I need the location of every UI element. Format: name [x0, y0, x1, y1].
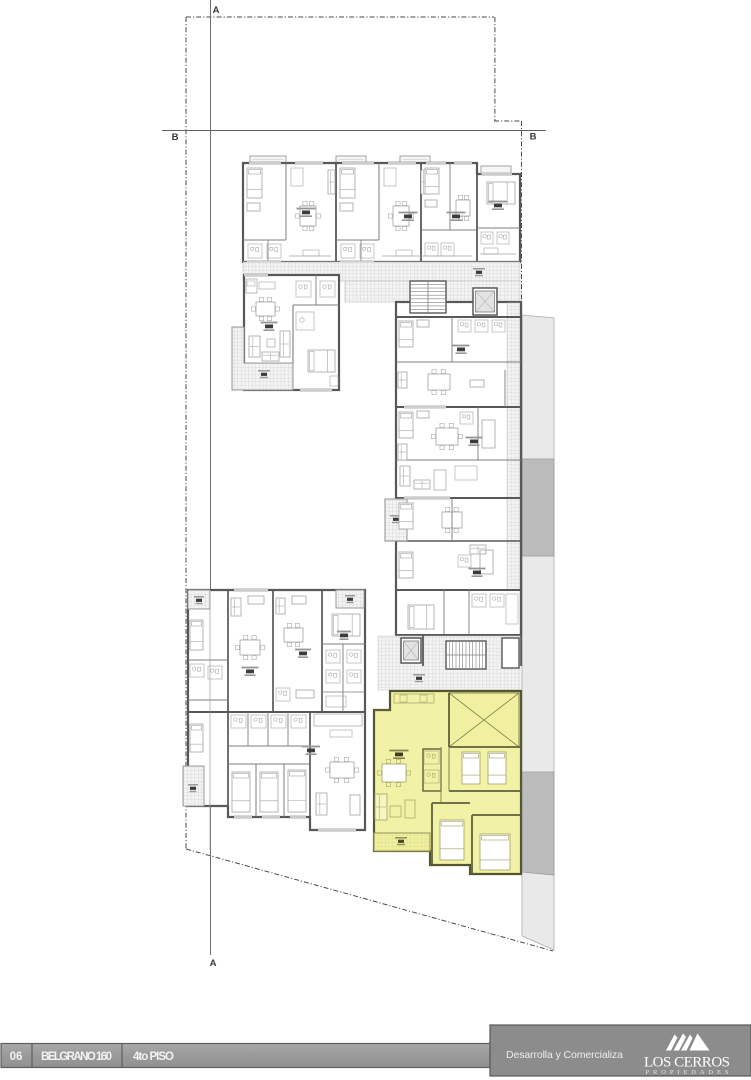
svg-text:06: 06 [10, 1051, 23, 1063]
svg-text:BELGRANO 160: BELGRANO 160 [41, 1051, 112, 1063]
svg-text:A: A [210, 958, 217, 969]
svg-text:Desarrolla y Comercializa: Desarrolla y Comercializa [506, 1049, 623, 1061]
svg-text:B: B [530, 132, 537, 143]
svg-text:A: A [213, 5, 220, 16]
svg-text:4to PISO: 4to PISO [133, 1051, 174, 1063]
svg-text:B: B [172, 132, 179, 143]
